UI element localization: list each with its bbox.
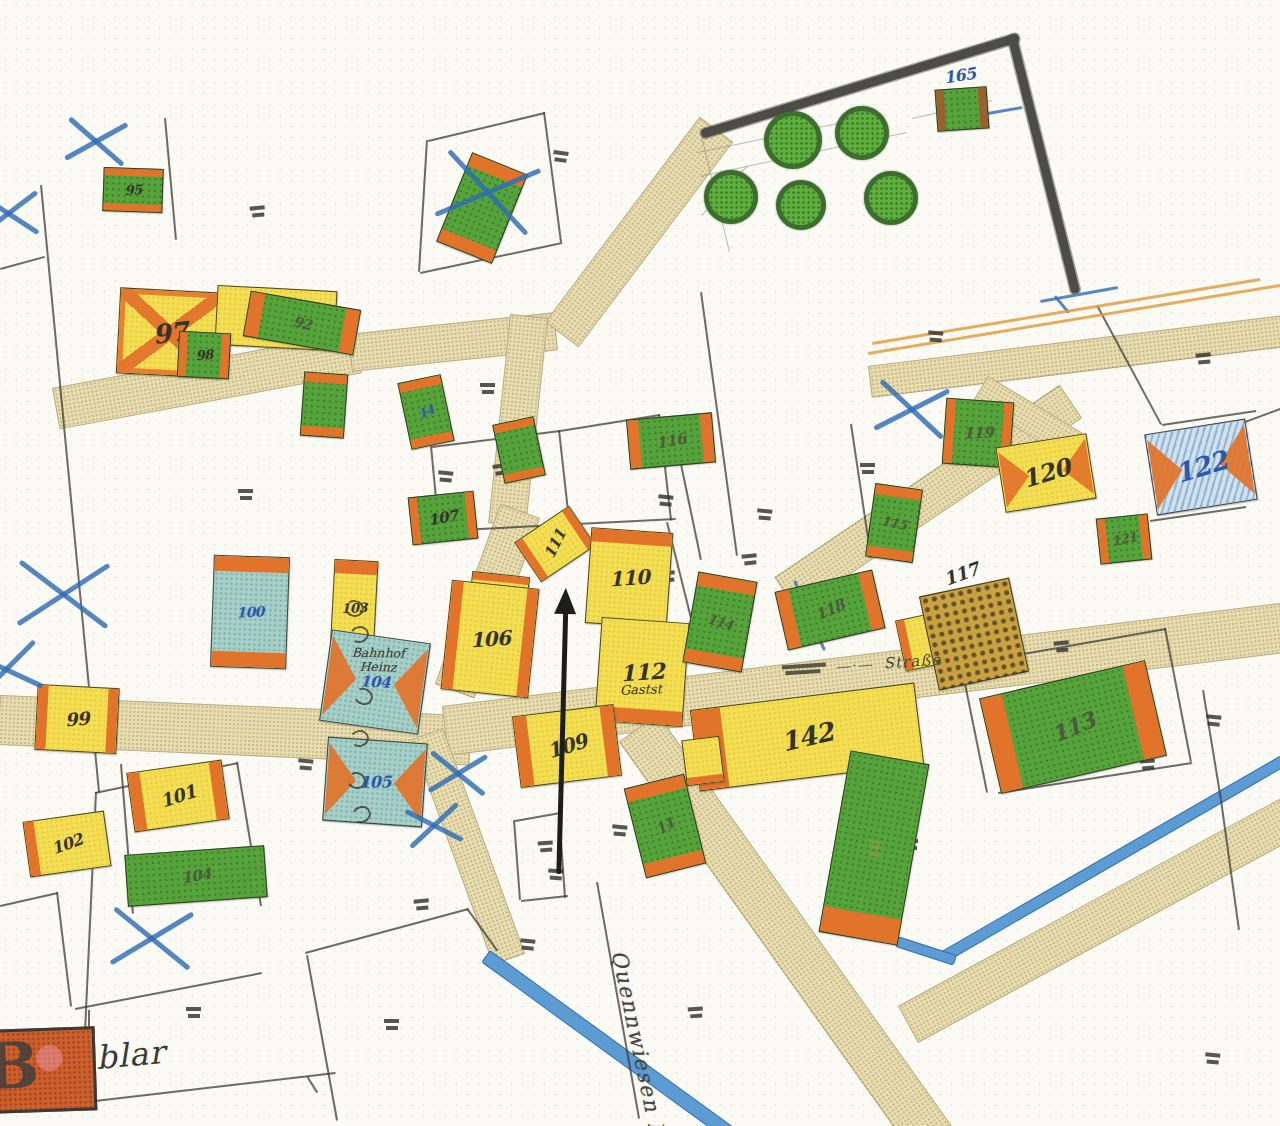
building-115: 115 (865, 483, 923, 563)
parcel-number-smudge (741, 552, 757, 566)
parcel-line (1202, 690, 1222, 800)
cross-mark-icon (0, 181, 39, 243)
parcel-number-smudge (480, 382, 495, 395)
building-label-g2: 14 (416, 403, 436, 422)
building-accent (399, 375, 442, 393)
parcel-line (307, 1076, 318, 1093)
building-label-95: 95 (124, 182, 142, 198)
cross-mark-icon (403, 793, 465, 855)
parcel-number-smudge (756, 507, 772, 521)
building-accent (127, 772, 147, 831)
building-label-118: 118 (813, 596, 848, 625)
parcel-line (513, 820, 521, 900)
field-name-label: Quennwiesen F (607, 948, 670, 1126)
building-label-142: 142 (778, 716, 836, 757)
building-accent (684, 648, 743, 671)
building-104t: 104Bahnhof Heinz (319, 629, 431, 734)
parcel-number-smudge (1053, 639, 1069, 653)
building-label-121: 121 (1110, 529, 1138, 549)
building-98: 98 (177, 331, 231, 380)
parcel-line (521, 895, 568, 902)
building-110: 110 (585, 527, 673, 628)
stamp-note: blar (94, 1033, 166, 1077)
parcel-line (95, 1072, 335, 1102)
parcel-number-smudge (1204, 1051, 1220, 1065)
building-102: 102 (23, 811, 112, 878)
building-label-100: 100 (236, 603, 265, 620)
building-accent (1123, 661, 1166, 759)
building-note-104t: Bahnhof Heinz (351, 646, 404, 674)
cross-mark-icon (869, 365, 955, 451)
building-100: 100 (210, 555, 290, 670)
parcel-line (0, 256, 44, 270)
building-116: 116 (626, 412, 716, 469)
tree-icon (764, 111, 822, 169)
stamp-letter: B (0, 1027, 40, 1104)
tree-icon (704, 170, 758, 224)
building-accent (820, 906, 901, 944)
building-label-117: 117 (941, 558, 982, 590)
building-122: 122 (1144, 419, 1258, 516)
building-106: 106 (440, 580, 539, 699)
parcel-line (428, 112, 545, 142)
building-label-113: 113 (1047, 706, 1098, 747)
parcel-number-smudge (413, 897, 429, 911)
building-accent (627, 420, 642, 469)
building-label-101: 101 (158, 780, 199, 811)
building-accent (409, 498, 422, 545)
building-label-165: 165 (942, 64, 976, 88)
building-label-107: 107 (427, 506, 460, 529)
building-accent (591, 528, 672, 547)
building-accent (105, 689, 118, 753)
stream-segment (481, 950, 736, 1126)
cross-mark-icon (61, 105, 131, 175)
building-label-111: 111 (540, 527, 569, 562)
parcel-number-smudge (657, 493, 673, 507)
parcel-number-smudge (519, 937, 535, 951)
street-name-smudge (782, 661, 827, 676)
tree-icon (864, 171, 918, 225)
parcel-line (56, 892, 72, 1006)
building-label-102: 102 (49, 830, 85, 859)
building-accent (305, 373, 348, 385)
building-165: 165 (935, 86, 990, 132)
parcel-number-smudge (249, 204, 265, 218)
building-accent (1097, 519, 1110, 564)
building-accent (513, 716, 534, 787)
cadastral-map-canvas: B blar —·— Straße Quennwiesen F 95979892… (0, 0, 1280, 1126)
building-label-106: 106 (469, 626, 511, 653)
building-accent (442, 581, 464, 690)
building-label-111g: 11 (653, 815, 677, 838)
building-99: 99 (34, 684, 119, 754)
parcel-number-smudge (927, 329, 943, 343)
building-accent (776, 590, 802, 649)
annotation-arrow (547, 588, 577, 878)
building-107: 107 (408, 491, 479, 546)
building-label-116: 116 (655, 430, 687, 453)
parcel-number-smudge (297, 757, 313, 771)
parcel-line (543, 112, 562, 242)
building-accent (335, 560, 378, 575)
building-accent (516, 589, 538, 698)
building-label-119: 119 (963, 423, 993, 442)
parcel-number-smudge (384, 1018, 399, 1031)
building-accent (697, 573, 756, 596)
building-label-104g: 104 (180, 865, 212, 888)
building-accent (214, 556, 288, 574)
building-121: 121 (1096, 513, 1153, 564)
parcel-line (164, 118, 177, 240)
building-accent (859, 571, 885, 630)
building-101: 101 (126, 760, 229, 833)
parcel-number-smudge (1195, 351, 1211, 365)
building-120: 120 (995, 433, 1096, 513)
building-accent (700, 413, 715, 462)
corner-stamp: B (0, 1026, 97, 1114)
parcel-number-smudge (611, 823, 627, 837)
building-label-115: 115 (880, 513, 908, 533)
parcel-line (306, 955, 338, 1120)
building-sublabel-112: Gastst (620, 681, 662, 697)
parcel-line (418, 140, 428, 272)
arrow-shaft (556, 608, 568, 874)
building-accent (978, 87, 989, 127)
parcel-number-smudge (552, 149, 569, 164)
building-label-98: 98 (195, 347, 213, 363)
building-label-110: 110 (608, 565, 650, 592)
building-accent (24, 821, 41, 876)
building-117: 117 (919, 577, 1029, 690)
tree-icon (776, 180, 826, 230)
building-label-114: 114 (706, 611, 735, 632)
building-g2: 14 (397, 374, 454, 450)
cross-mark-icon (106, 892, 198, 984)
parcel-number-smudge (688, 1005, 704, 1019)
building-accent (936, 90, 947, 130)
parcel-number-smudge (1205, 713, 1221, 727)
orchard-wall (1007, 34, 1080, 294)
building-accent (866, 546, 913, 562)
parcel-line (305, 908, 468, 954)
building-accent (209, 761, 229, 820)
building-accent (211, 651, 285, 669)
parcel-number-smudge (860, 462, 875, 475)
building-accent (220, 334, 230, 378)
building-accent (301, 425, 344, 437)
building-114: 114 (682, 571, 757, 672)
building-label-91: 91 (865, 838, 883, 858)
building-g1 (300, 372, 348, 439)
building-label-99: 99 (64, 707, 90, 730)
building-accent (644, 850, 705, 877)
road-segment (898, 799, 1280, 1043)
parcel-line (0, 892, 58, 907)
building-91: 91 (819, 750, 930, 945)
building-accent (103, 203, 161, 212)
building-95: 95 (102, 167, 163, 213)
building-accent (464, 492, 477, 539)
building-142b (681, 736, 724, 786)
building-accent (178, 332, 188, 376)
building-label-92: 92 (291, 313, 313, 333)
parcel-number-smudge (238, 488, 253, 501)
building-accent (980, 694, 1023, 792)
parcel-number-smudge (186, 1006, 201, 1019)
street-dash: —·— (835, 655, 874, 676)
tree-icon (835, 106, 889, 160)
parcel-number-smudge (437, 469, 453, 483)
